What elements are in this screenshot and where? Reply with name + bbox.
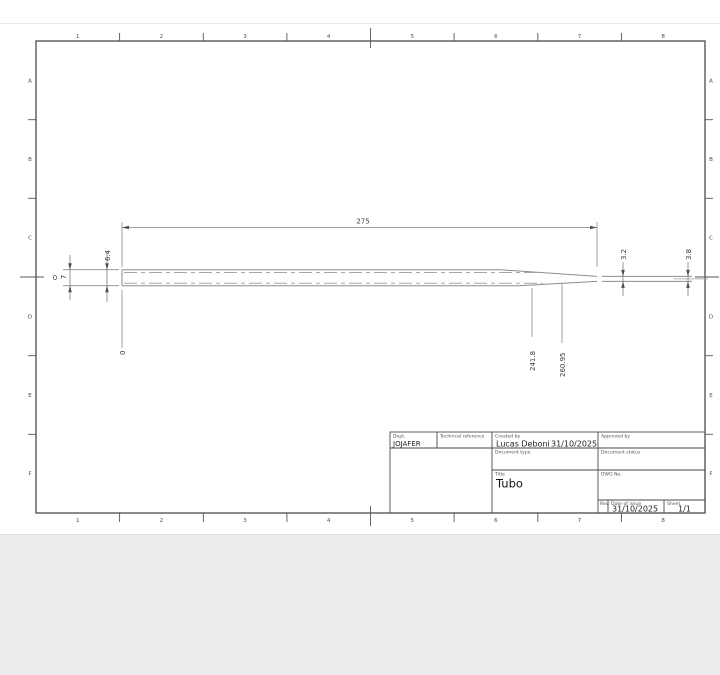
grid-row-labels-left: A B C D E F	[28, 78, 32, 477]
tube-outline	[122, 270, 597, 286]
grid-row-label: D	[709, 314, 713, 320]
ordinate-zero-text: 0	[119, 351, 127, 355]
grid-row-label: D	[28, 314, 32, 320]
grid-column-label: 6	[494, 518, 498, 524]
dim-total-length: 275	[122, 218, 597, 268]
dim-tip-diameter-38-text: 3.8	[685, 249, 693, 260]
dim-wall-thickness-fraction: 7	[60, 275, 68, 279]
grid-row-labels-right: A B C D E F	[709, 78, 713, 477]
rev-label: Rev.	[600, 501, 610, 507]
document-status-label: Document status	[601, 450, 641, 456]
grid-row-label: A	[28, 78, 32, 84]
grid-row-label: A	[709, 78, 713, 84]
grid-column-label: 5	[410, 34, 414, 40]
grid-row-label: F	[28, 472, 31, 478]
created-date-value: 31/10/2025	[551, 440, 597, 449]
dwg-no-label: DWG No.	[601, 472, 622, 478]
grid-row-label: C	[709, 236, 713, 242]
grid-column-label: 3	[243, 518, 247, 524]
grid-column-label: 4	[327, 34, 331, 40]
approved-by-label: Approved by	[601, 434, 630, 440]
grid-column-label: 1	[76, 518, 80, 524]
tube-tip	[602, 276, 708, 281]
dept-label: Dept.	[393, 434, 406, 440]
grid-row-label: F	[709, 472, 712, 478]
grid-column-label: 7	[578, 34, 582, 40]
grid-column-label: 8	[661, 34, 665, 40]
grid-column-label: 3	[243, 34, 247, 40]
sheet-value: 1/1	[678, 505, 691, 514]
grid-column-label: 1	[76, 34, 80, 40]
ordinate-26095-text: 260.95	[559, 353, 567, 378]
grid-row-label: B	[709, 157, 713, 163]
created-by-value: Lucas Deboni	[496, 440, 550, 449]
grid-column-label: 8	[661, 518, 665, 524]
dim-tip-diameter-32: 3.2	[620, 249, 628, 296]
dim-tip-diameter-38: 3.8	[685, 249, 693, 296]
dim-wall-thickness-whole: 0	[53, 274, 57, 282]
grid-column-label: 5	[410, 518, 414, 524]
document-type-label: Document type	[495, 450, 531, 456]
ordinate-2418: 241.8	[529, 288, 537, 371]
grid-row-label: E	[28, 393, 32, 399]
grid-column-label: 6	[494, 34, 498, 40]
technical-reference-label: Technical reference	[439, 434, 485, 440]
dept-value: JOJAFER	[392, 440, 421, 448]
title-value: Tubo	[495, 477, 523, 491]
dim-tip-diameter-32-text: 3.2	[620, 249, 628, 260]
date-of-issue-value: 31/10/2025	[612, 505, 658, 514]
grid-row-label: B	[28, 157, 32, 163]
title-block: Dept. JOJAFER Technical reference Create…	[390, 432, 705, 514]
grid-column-label: 2	[160, 518, 164, 524]
grid-column-label: 4	[327, 518, 331, 524]
ordinate-26095: 260.95	[559, 283, 567, 377]
ordinate-zero: 0	[119, 290, 127, 355]
grid-row-label: C	[28, 236, 32, 242]
dim-total-length-text: 275	[356, 218, 369, 226]
grid-column-label: 7	[578, 518, 582, 524]
dim-outer-diameter: 6.4	[104, 249, 112, 302]
ordinate-2418-text: 241.8	[529, 351, 537, 371]
dim-outer-diameter-text: 6.4	[104, 249, 112, 261]
grid-row-label: E	[709, 393, 713, 399]
drawing-sheet: 1 2 3 4 5 6 7 8 1 2 3 4 5 6 7 8 A B C D …	[0, 0, 720, 674]
grid-column-label: 2	[160, 34, 164, 40]
